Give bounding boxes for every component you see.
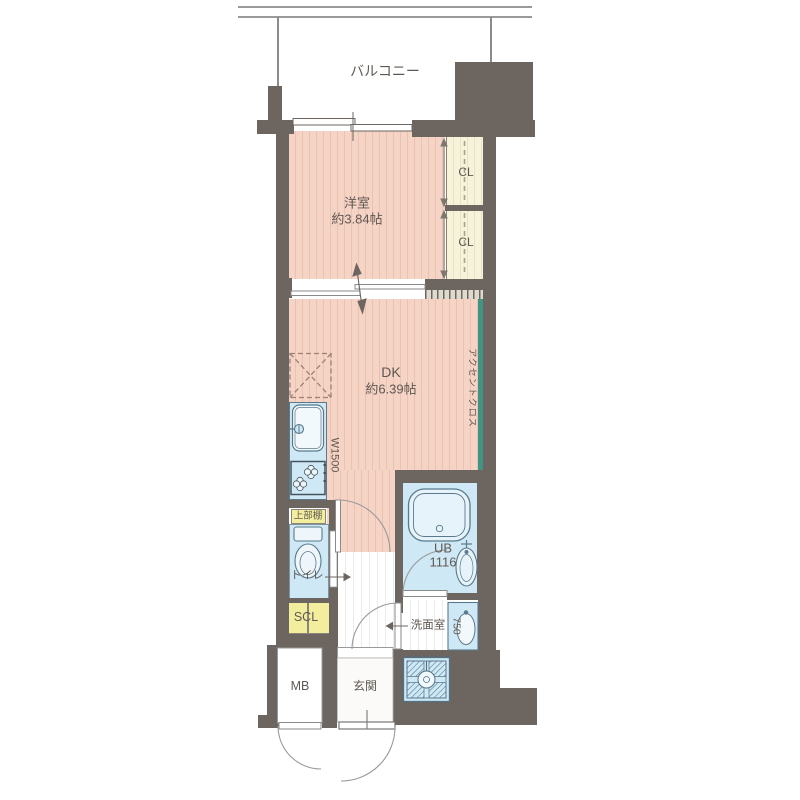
entrance-door-arc (341, 727, 395, 781)
kitchen-width-label: W1500 (329, 438, 340, 473)
western-room-label: 洋室 (344, 197, 370, 210)
meter-box-label: MB (291, 680, 310, 693)
washbasin-icon (456, 540, 477, 586)
accent-wall-label: アクセントクロス (468, 348, 477, 428)
closet-upper-label: CL (458, 166, 473, 178)
dk-area: 約6.39帖 (365, 383, 416, 396)
meter-box-door-arc (278, 726, 321, 769)
fixtures-overlay (0, 0, 800, 800)
western-room-area: 約3.84帖 (331, 213, 382, 226)
upper-shelf-label: 上部棚 (294, 511, 323, 521)
closet-lower-label: CL (458, 236, 473, 248)
entrance-label: 玄関 (353, 680, 377, 692)
entrance-step (338, 648, 394, 659)
kitchen-sink-icon (290, 405, 324, 451)
unit-bath-size: 1116 (430, 556, 457, 569)
balcony-label: バルコニー (350, 64, 420, 78)
vanity-width-label: 750 (451, 617, 462, 635)
toilet-label: トイレ (291, 571, 324, 582)
shoe-closet-label: SCL (294, 611, 318, 624)
floor-plan-canvas: バルコニー 洋室 約3.84帖 CL CL DK 約6.39帖 アクセントクロス… (0, 0, 800, 800)
sliding-window-icon (293, 112, 412, 141)
toilet-label-arrow (325, 574, 350, 581)
dk-door-arc (338, 500, 390, 552)
door-swing-arcs (278, 500, 447, 781)
unit-bath-label: UB (434, 542, 452, 555)
refrigerator-space-icon (290, 354, 331, 398)
washing-machine-pan-icon (404, 658, 450, 702)
washroom-label: 洗面室 (411, 620, 446, 632)
sliding-door (291, 285, 425, 296)
bathtub-icon (409, 489, 471, 541)
stove-icon (291, 462, 326, 495)
dk-label: DK (381, 365, 400, 379)
closet-door-arrow (441, 139, 447, 278)
